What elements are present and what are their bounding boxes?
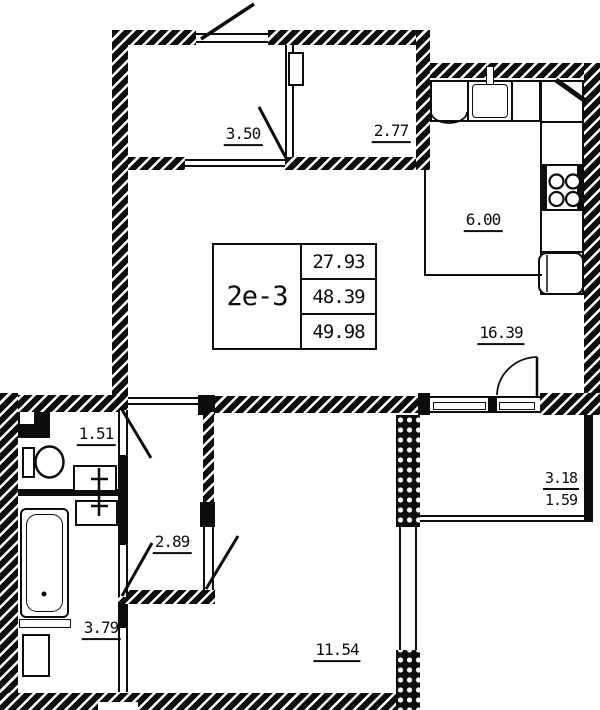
- area-total: 48.39: [302, 278, 375, 313]
- bathtub-drain: [42, 592, 47, 597]
- room-area-living: 16.39: [477, 325, 524, 345]
- unit-code: 2е-3: [214, 245, 300, 348]
- room-area-wc: 1.51: [77, 426, 116, 446]
- balcony-door-arc: [497, 357, 537, 395]
- title-block-areas: 27.93 48.39 49.98: [300, 245, 375, 348]
- room-area-corridor: 2.89: [153, 534, 192, 554]
- entrance-door-leaf: [201, 4, 254, 39]
- room-area-kitchen: 6.00: [464, 212, 503, 232]
- bath-door-leaf: [122, 543, 152, 596]
- area-total-with-balcony: 49.98: [302, 313, 375, 348]
- area-living-total: 27.93: [302, 245, 375, 278]
- stove-burners: [550, 175, 581, 207]
- toilet-bowl: [36, 447, 64, 478]
- room-area-hall: 3.50: [224, 126, 263, 146]
- balcony-area-coef: 1.59: [543, 490, 579, 509]
- balcony-area-full: 3.18: [543, 469, 579, 490]
- title-block: 2е-3 27.93 48.39 49.98: [212, 243, 377, 350]
- room-area-bathroom: 3.79: [82, 620, 121, 640]
- plan-linework: [0, 0, 600, 710]
- floor-plan: 3.50 2.77 6.00 16.39 1.51 2.89 3.79 11.5…: [0, 0, 600, 710]
- vent-flue-diagonal: [556, 80, 584, 100]
- bedroom-door-leaf: [206, 536, 238, 589]
- room-area-bedroom: 11.54: [313, 642, 360, 662]
- wc-door-leaf: [121, 408, 151, 458]
- counter-arc: [431, 112, 467, 123]
- hall-door-leaf: [259, 107, 286, 158]
- balcony-area-label: 3.18 1.59: [543, 469, 579, 509]
- room-area-wardrobe: 2.77: [372, 123, 411, 143]
